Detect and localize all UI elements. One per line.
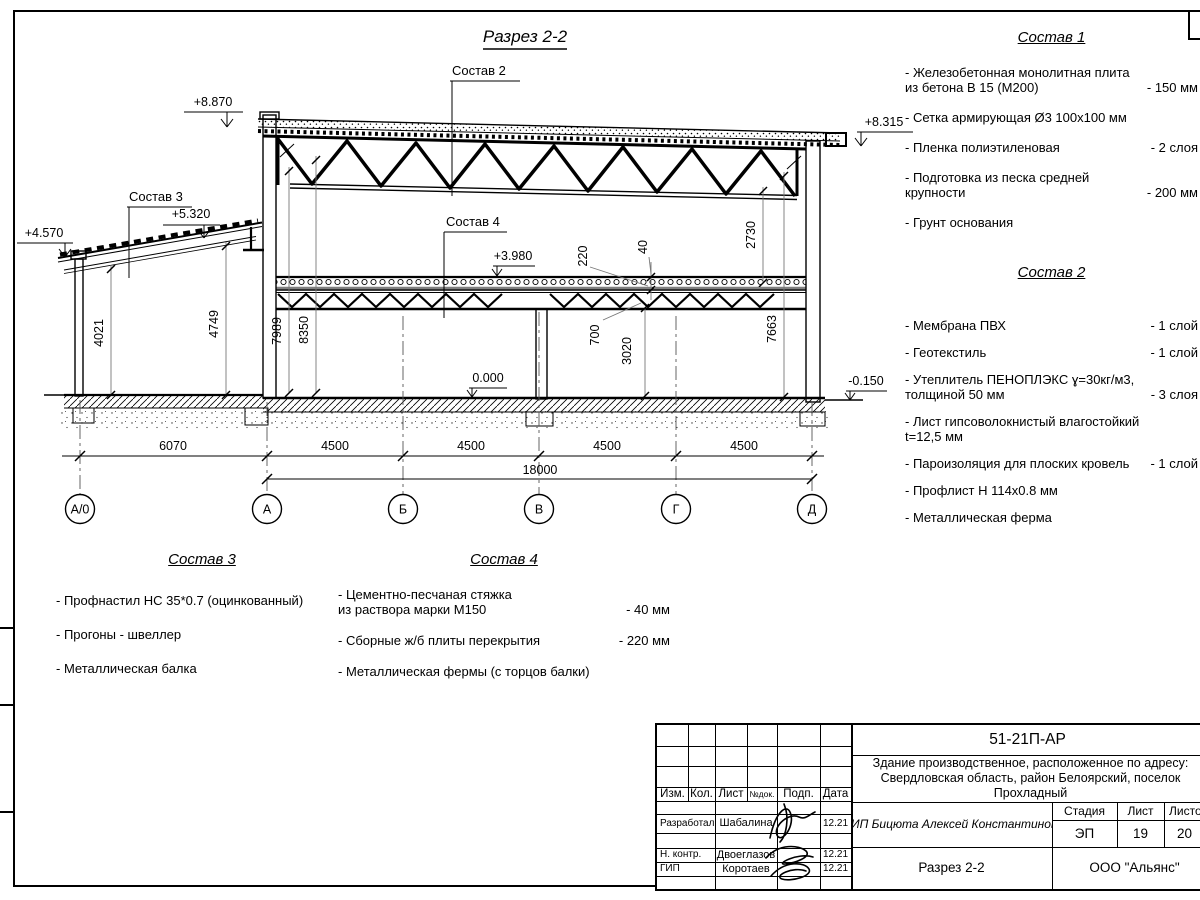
col-header-list: Лист <box>715 787 747 801</box>
col-header-data: Дата <box>820 787 851 801</box>
main-left-wall <box>263 115 276 398</box>
list-item: - Металлическая фермы (с торцов балки) <box>338 664 670 679</box>
stage-label: Стадия <box>1052 802 1117 820</box>
composition-list-4: Состав 4 - Цементно-песчаная стяжка из р… <box>338 552 670 695</box>
date-gip: 12.21 <box>820 862 851 876</box>
axis-d: Д <box>808 503 817 517</box>
col-header-izm: Изм. <box>657 787 688 801</box>
sheet-main-title: Разрез 2-2 <box>483 27 568 49</box>
dim-220: 220 <box>576 246 590 267</box>
project-description: Здание производственное, расположенное п… <box>857 756 1200 802</box>
dim-2730: 2730 <box>744 221 758 249</box>
level-5320: +5.320 <box>172 207 211 221</box>
building-section <box>44 112 863 429</box>
dim-4500-2: 4500 <box>457 439 485 453</box>
col-header-podp: Подп. <box>777 787 820 801</box>
stage-value: ЭП <box>1052 820 1117 847</box>
date-developer: 12.21 <box>820 814 851 833</box>
dim-18000: 18000 <box>523 463 558 477</box>
axis-a: А <box>263 503 272 517</box>
list-item: - Пленка полиэтиленовая- 2 слоя <box>905 140 1198 155</box>
list-item: - Цементно-песчаная стяжка из раствора м… <box>338 587 670 617</box>
annex-wall-cap <box>71 251 86 259</box>
list-item: - Металлическая балка <box>56 661 348 676</box>
composition-4-title: Состав 4 <box>338 552 670 567</box>
axis-a0: А/0 <box>71 503 90 517</box>
page-title: Разрез 2-2 <box>483 27 568 46</box>
main-right-wall <box>806 141 820 402</box>
footing <box>526 412 553 426</box>
sheets-label: Листов <box>1169 802 1200 820</box>
level-4570: +4.570 <box>25 226 64 240</box>
dim-3020: 3020 <box>620 337 634 365</box>
role-ncontrol: Н. контр. <box>660 848 715 862</box>
wall-cap <box>260 112 279 119</box>
annex <box>58 221 264 397</box>
list-item: - Утеплитель ПЕНОПЛЭКС ɣ=30кг/м3, толщин… <box>905 372 1198 402</box>
callout-sostav2: Состав 2 <box>452 63 506 78</box>
dim-8350: 8350 <box>297 316 311 344</box>
roof-edge-cap <box>826 133 846 146</box>
axes-and-dimensions: 6070 4500 4500 4500 4500 18000 А/0 А Б В… <box>62 312 827 524</box>
sheet-name: Разрез 2-2 <box>851 847 1052 889</box>
callout-sostav3: Состав 3 <box>129 189 183 204</box>
sheet-label: Лист <box>1117 802 1164 820</box>
annex-floor-slab <box>64 395 263 408</box>
footing <box>245 408 268 425</box>
filing-tick <box>0 704 13 706</box>
ground-sand <box>58 410 828 429</box>
list-item: - Прогоны - швеллер <box>56 627 348 642</box>
role-gip: ГИП <box>660 862 715 876</box>
intermediate-floor <box>276 277 806 309</box>
roof-truss <box>278 137 801 200</box>
filing-tick <box>0 811 13 813</box>
list-item: - Сборные ж/б плиты перекрытия- 220 мм <box>338 633 670 648</box>
client-name: ИП Бицюта Алексей Константинович <box>851 802 1052 847</box>
composition-list-2: Состав 2 - Мембрана ПВХ- 1 слой - Геотек… <box>905 265 1198 537</box>
dim-7989: 7989 <box>270 317 284 345</box>
frame-top <box>13 10 1200 12</box>
callouts: Состав 2 Состав 3 Состав 4 <box>127 63 520 318</box>
list-item: - Мембрана ПВХ- 1 слой <box>905 318 1198 333</box>
elevation-marks: +8.870 +8.315 +4.570 +5.320 +3.980 0.000… <box>17 95 913 400</box>
sheets-value: 20 <box>1177 820 1200 847</box>
dim-4500-3: 4500 <box>593 439 621 453</box>
list-item: - Металлическая ферма <box>905 510 1198 525</box>
annex-left-wall <box>75 259 83 396</box>
list-item: - Лист гипсоволокнистый влагостойкий t=1… <box>905 414 1198 444</box>
vertical-dimensions: 4021 4749 7989 8350 2730 7663 3020 700 2… <box>92 156 788 401</box>
level-m0150: -0.150 <box>848 374 883 388</box>
filing-tick <box>0 627 13 629</box>
list-item: - Сетка армирующая Ø3 100х100 мм <box>905 110 1198 125</box>
dim-4500-4: 4500 <box>730 439 758 453</box>
document-number: 51-21П-АР <box>851 725 1200 755</box>
axis-bubbles: А/0 А Б В Г Д <box>66 495 827 524</box>
role-developer: Разработал <box>660 814 715 833</box>
dim-4500-1: 4500 <box>321 439 349 453</box>
main-roof-insulation <box>258 119 840 141</box>
level-8870: +8.870 <box>194 95 233 109</box>
axis-g: Г <box>673 503 680 517</box>
composition-2-title: Состав 2 <box>905 265 1198 280</box>
list-item: - Пароизоляция для плоских кровель- 1 сл… <box>905 456 1198 471</box>
dim-7663: 7663 <box>765 315 779 343</box>
name-developer: Шабалина <box>715 814 777 833</box>
dim-40: 40 <box>636 240 650 254</box>
list-item: - Подготовка из песка средней крупности-… <box>905 170 1198 200</box>
footing <box>73 408 94 423</box>
title-block: Изм. Кол. Лист №док. Подп. Дата Разработ… <box>655 723 1200 891</box>
dim-4749: 4749 <box>207 310 221 338</box>
level-0000: 0.000 <box>472 371 503 385</box>
list-item: - Профнастил НС 35*0.7 (оцинкованный) <box>56 593 348 608</box>
footing <box>800 412 825 426</box>
composition-list-3: Состав 3 - Профнастил НС 35*0.7 (оцинков… <box>56 552 348 695</box>
col-header-kol: Кол. <box>688 787 715 801</box>
level-8315: +8.315 <box>865 115 904 129</box>
sheet-value: 19 <box>1117 820 1164 847</box>
list-item: - Профлист Н 114х0.8 мм <box>905 483 1198 498</box>
composition-list-1: Состав 1 - Железобетонная монолитная пли… <box>905 30 1198 245</box>
list-item: - Железобетонная монолитная плита из бет… <box>905 65 1198 95</box>
dim-700: 700 <box>588 325 602 346</box>
callout-sostav4: Состав 4 <box>446 214 500 229</box>
composition-3-title: Состав 3 <box>56 552 348 567</box>
company-name: ООО "Альянс" <box>1052 847 1200 889</box>
name-gip: Коротаев <box>715 862 777 876</box>
col-header-ndok: №док. <box>747 787 777 801</box>
list-item: - Геотекстиль- 1 слой <box>905 345 1198 360</box>
level-3980: +3.980 <box>494 249 533 263</box>
dim-6070: 6070 <box>159 439 187 453</box>
list-item: - Грунт основания <box>905 215 1198 230</box>
frame-left <box>13 10 15 887</box>
column <box>536 309 547 399</box>
drawing-sheet: Состав 1 - Железобетонная монолитная пли… <box>0 0 1200 900</box>
date-ncontrol: 12.21 <box>820 848 851 862</box>
composition-1-title: Состав 1 <box>905 30 1198 45</box>
axis-b: Б <box>399 503 407 517</box>
main-floor-slab <box>263 398 825 412</box>
dim-4021: 4021 <box>92 319 106 347</box>
name-ncontrol: Двоеглазов <box>715 848 777 862</box>
axis-v: В <box>535 503 543 517</box>
